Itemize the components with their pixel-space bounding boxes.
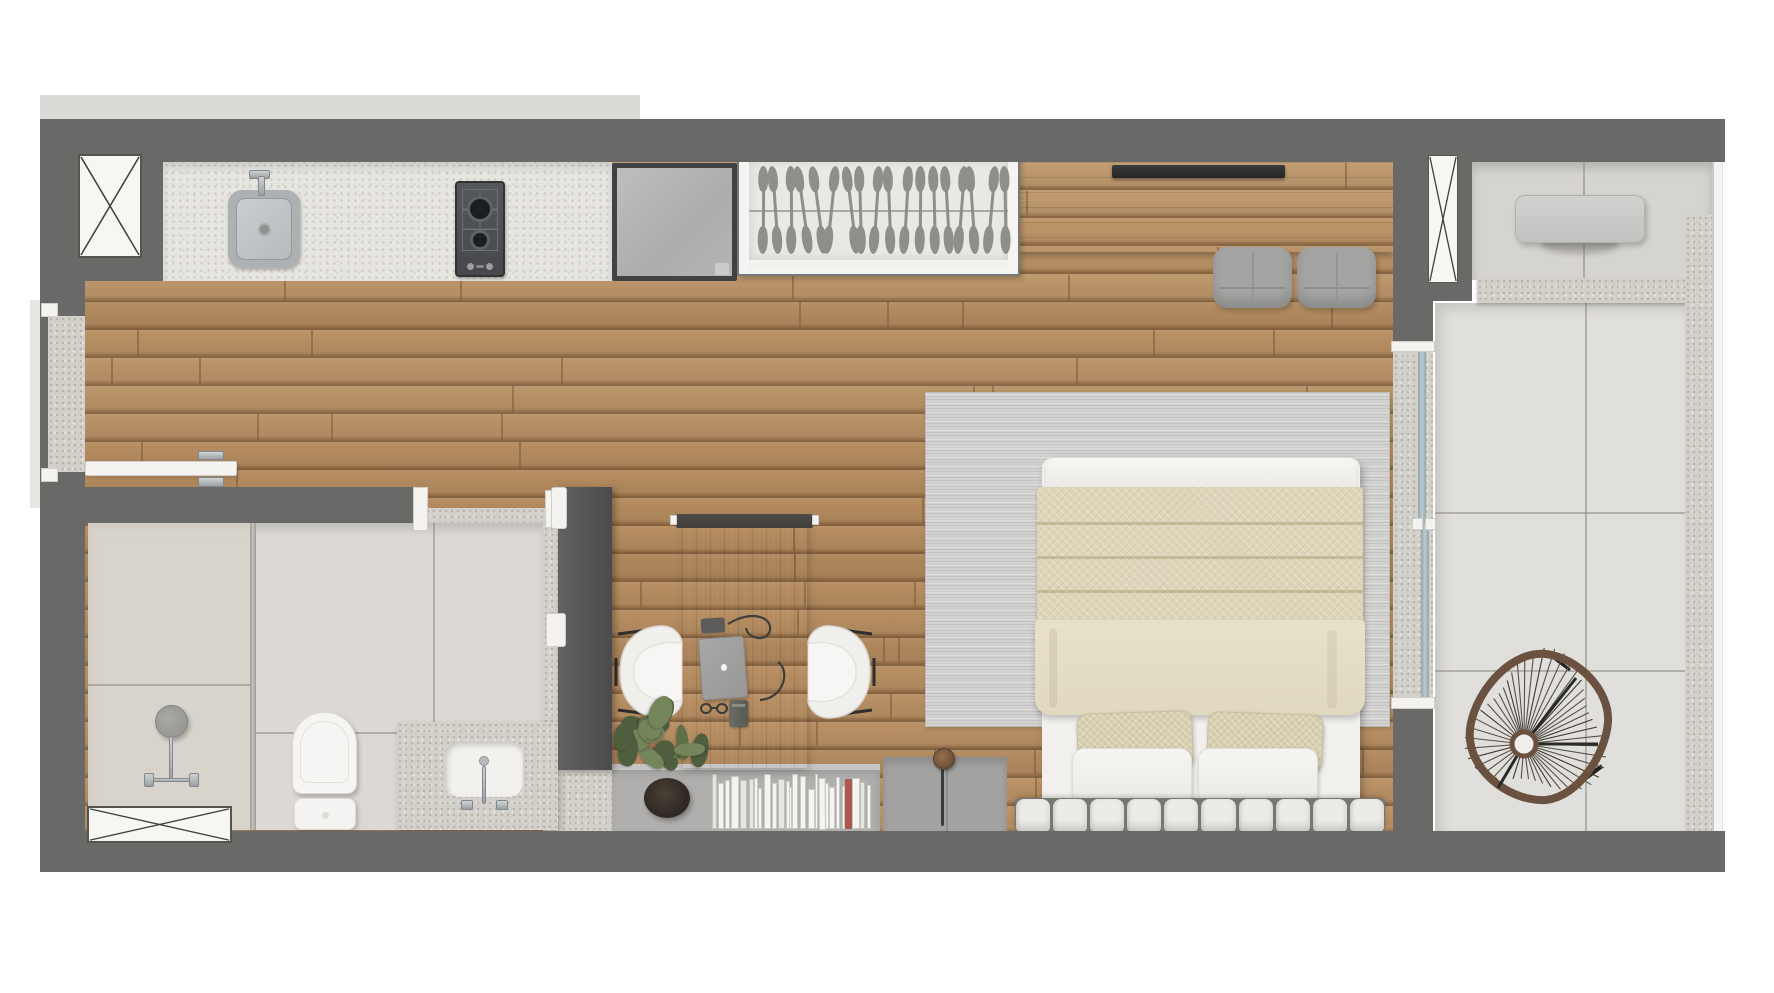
book: [845, 779, 852, 829]
floor-plank-seam: [199, 358, 201, 384]
shower-area: [88, 523, 250, 830]
vanity-handle-left: [461, 800, 473, 810]
floor-plank-seam: [331, 414, 333, 440]
cooktop-control-icon: [476, 265, 484, 268]
book: [740, 780, 747, 829]
pouf-right: [1297, 247, 1376, 308]
balcony-door-handle-left: [1412, 518, 1423, 530]
desk-cap-bracket-right: [812, 515, 819, 525]
entry-door-handle: [198, 451, 224, 460]
book: [800, 776, 806, 829]
balcony-table: [1515, 195, 1645, 243]
bed-top-fold: [1046, 458, 1356, 490]
wardrobe: [737, 150, 1020, 276]
book: [764, 774, 771, 829]
bathroom-door-handle-top: [551, 487, 567, 529]
book: [772, 783, 777, 829]
refrigerator-door: [617, 168, 732, 276]
ventilation-shaft-topleft-icon: [78, 154, 142, 258]
book: [836, 777, 840, 829]
balcony-granite-edge: [1685, 215, 1712, 831]
shower-crossbar: [150, 778, 193, 782]
book: [852, 778, 859, 829]
book-row-left: [712, 772, 778, 831]
book: [867, 785, 871, 829]
bed-duvet: [1035, 620, 1365, 715]
entry-threshold: [48, 316, 85, 472]
kitchen-sink: [228, 190, 300, 268]
headboard-channel: [1313, 799, 1347, 832]
bathroom-door-jamb-left: [413, 487, 428, 531]
balcony-door-handle-right: [1425, 518, 1436, 530]
vanity-handle-right: [496, 800, 508, 810]
book: [786, 781, 790, 829]
floor-lamp-stem: [941, 768, 944, 826]
entry-door-jamb-bottom: [41, 468, 58, 482]
floor-plank-seam: [883, 637, 885, 663]
shower-valve-right: [189, 773, 199, 787]
pouf-seam-v: [1252, 253, 1254, 301]
headboard-channel: [1201, 799, 1235, 832]
floor-plank-seam: [962, 302, 964, 328]
floor-plank-seam: [561, 358, 563, 384]
hanger-icon: [998, 166, 1012, 254]
toilet-seat-line: [300, 721, 349, 783]
floor-plank-seam: [311, 330, 313, 356]
toilet-tank: [294, 798, 356, 830]
book: [778, 779, 784, 829]
pillow-white-right: [1198, 748, 1318, 805]
shower-partition-glass: [250, 523, 256, 830]
tile-grout: [1435, 512, 1685, 514]
refrigerator: [612, 163, 737, 281]
book: [818, 777, 825, 829]
wardrobe-front-strip: [749, 262, 1008, 270]
wardrobe-interior: [749, 160, 1008, 260]
cooktop-knob-icon-2: [486, 263, 493, 270]
floor-plank-seam: [640, 581, 642, 607]
hanger-icon: [882, 166, 897, 254]
headboard-channel: [1053, 799, 1087, 832]
cooktop-knob-icon: [467, 263, 474, 270]
balcony-door-cap-top: [1391, 341, 1435, 352]
floor-plank-seam: [1273, 330, 1275, 356]
headboard-channel: [1090, 799, 1124, 832]
headboard-channel: [1239, 799, 1273, 832]
headboard-channel: [1350, 799, 1384, 832]
shower-pipe: [169, 736, 173, 782]
ventilation-shaft-bathroom-icon: [87, 806, 232, 843]
ventilation-shaft-balcony-icon: [1428, 155, 1458, 283]
pillow-white-left: [1072, 748, 1192, 805]
shower-head-icon: [155, 705, 188, 738]
plant-pot: [644, 778, 690, 818]
book: [808, 789, 815, 829]
floor-plank-seam: [887, 302, 889, 328]
floor-plank-seam: [512, 386, 514, 412]
vanity-faucet-icon: [479, 756, 489, 766]
hanger-icon: [897, 166, 914, 255]
book: [792, 774, 797, 829]
book: [825, 783, 828, 829]
book: [731, 776, 738, 829]
acapulco-chair: [1458, 648, 1620, 810]
bathroom-door-handle-mid: [546, 613, 566, 647]
floor-lamp-shade-icon: [933, 748, 955, 770]
cooktop-burner-large-icon: [467, 196, 493, 222]
balcony-door-glass-lower: [1421, 524, 1429, 700]
tile-grout: [88, 684, 253, 686]
book: [842, 786, 845, 829]
floor-plank-seam: [914, 581, 916, 607]
book: [754, 778, 757, 829]
balcony-door-cap-bottom: [1391, 697, 1435, 709]
toilet: [292, 712, 357, 794]
headboard-channel: [1276, 799, 1310, 832]
headboard-channel: [1127, 799, 1161, 832]
desk-cap: [676, 514, 813, 528]
vanity-faucet-stem: [482, 766, 486, 804]
book: [749, 779, 754, 829]
balcony-door-glass-upper: [1418, 352, 1426, 524]
pouf-seam-v: [1336, 253, 1338, 301]
cooktop: [455, 181, 505, 277]
hanger-icon: [914, 166, 927, 254]
floor-plank-seam: [898, 637, 900, 663]
headboard: [1015, 798, 1385, 833]
book: [725, 780, 730, 829]
bathroom-door-threshold: [413, 508, 558, 523]
balcony-granite-band: [1477, 278, 1712, 303]
floor-plank-seam: [890, 693, 892, 719]
refrigerator-hinge-icon: [715, 263, 729, 275]
floor-plank-seam: [1068, 275, 1070, 301]
floor-plank-seam: [1076, 358, 1078, 384]
floor-plan: [0, 0, 1774, 993]
balcony-glass-railing: [1712, 160, 1723, 831]
book-row-right: [786, 772, 874, 831]
entry-door-leaf: [85, 461, 237, 476]
exterior-ledge-top: [40, 95, 640, 121]
wall-divider-balcony-lower: [1393, 705, 1433, 832]
potted-plant: [600, 680, 720, 820]
floor-plank-shade: [85, 357, 1393, 385]
hanger-icon: [853, 166, 867, 254]
cooktop-burner-small-icon: [470, 230, 490, 250]
floor-plank-shade: [85, 301, 1393, 329]
wall-top: [40, 119, 1725, 162]
tv: [1112, 165, 1285, 178]
floor-plank-seam: [111, 358, 113, 384]
headboard-channel: [1016, 799, 1050, 832]
floor-plank-seam: [519, 442, 521, 468]
floor-plank-seam: [137, 330, 139, 356]
book: [829, 787, 834, 829]
floor-plank-seam: [1153, 330, 1155, 356]
bathroom-wall-top: [85, 487, 413, 523]
bed: [1035, 458, 1365, 836]
kitchen-sink-drain-icon: [258, 223, 271, 236]
wall-bottom: [40, 831, 1725, 872]
pouf-left: [1213, 247, 1292, 308]
desk-cap-bracket-left: [670, 515, 677, 525]
floor-plank-seam: [501, 414, 503, 440]
book: [860, 782, 865, 829]
book: [758, 788, 762, 829]
speaker-device: [729, 700, 748, 727]
entry-door-handle-inner: [198, 477, 224, 487]
floor-plank-seam: [257, 414, 259, 440]
floor-plank-seam: [799, 302, 801, 328]
kitchen-faucet-spout: [258, 176, 265, 196]
headboard-channel: [1164, 799, 1198, 832]
toilet-flush-button-icon: [322, 812, 329, 819]
entry-door-jamb-top: [41, 303, 58, 317]
shower-valve-left: [144, 773, 154, 787]
bed-quilt: [1037, 487, 1363, 623]
floor-plank-seam: [792, 275, 794, 301]
